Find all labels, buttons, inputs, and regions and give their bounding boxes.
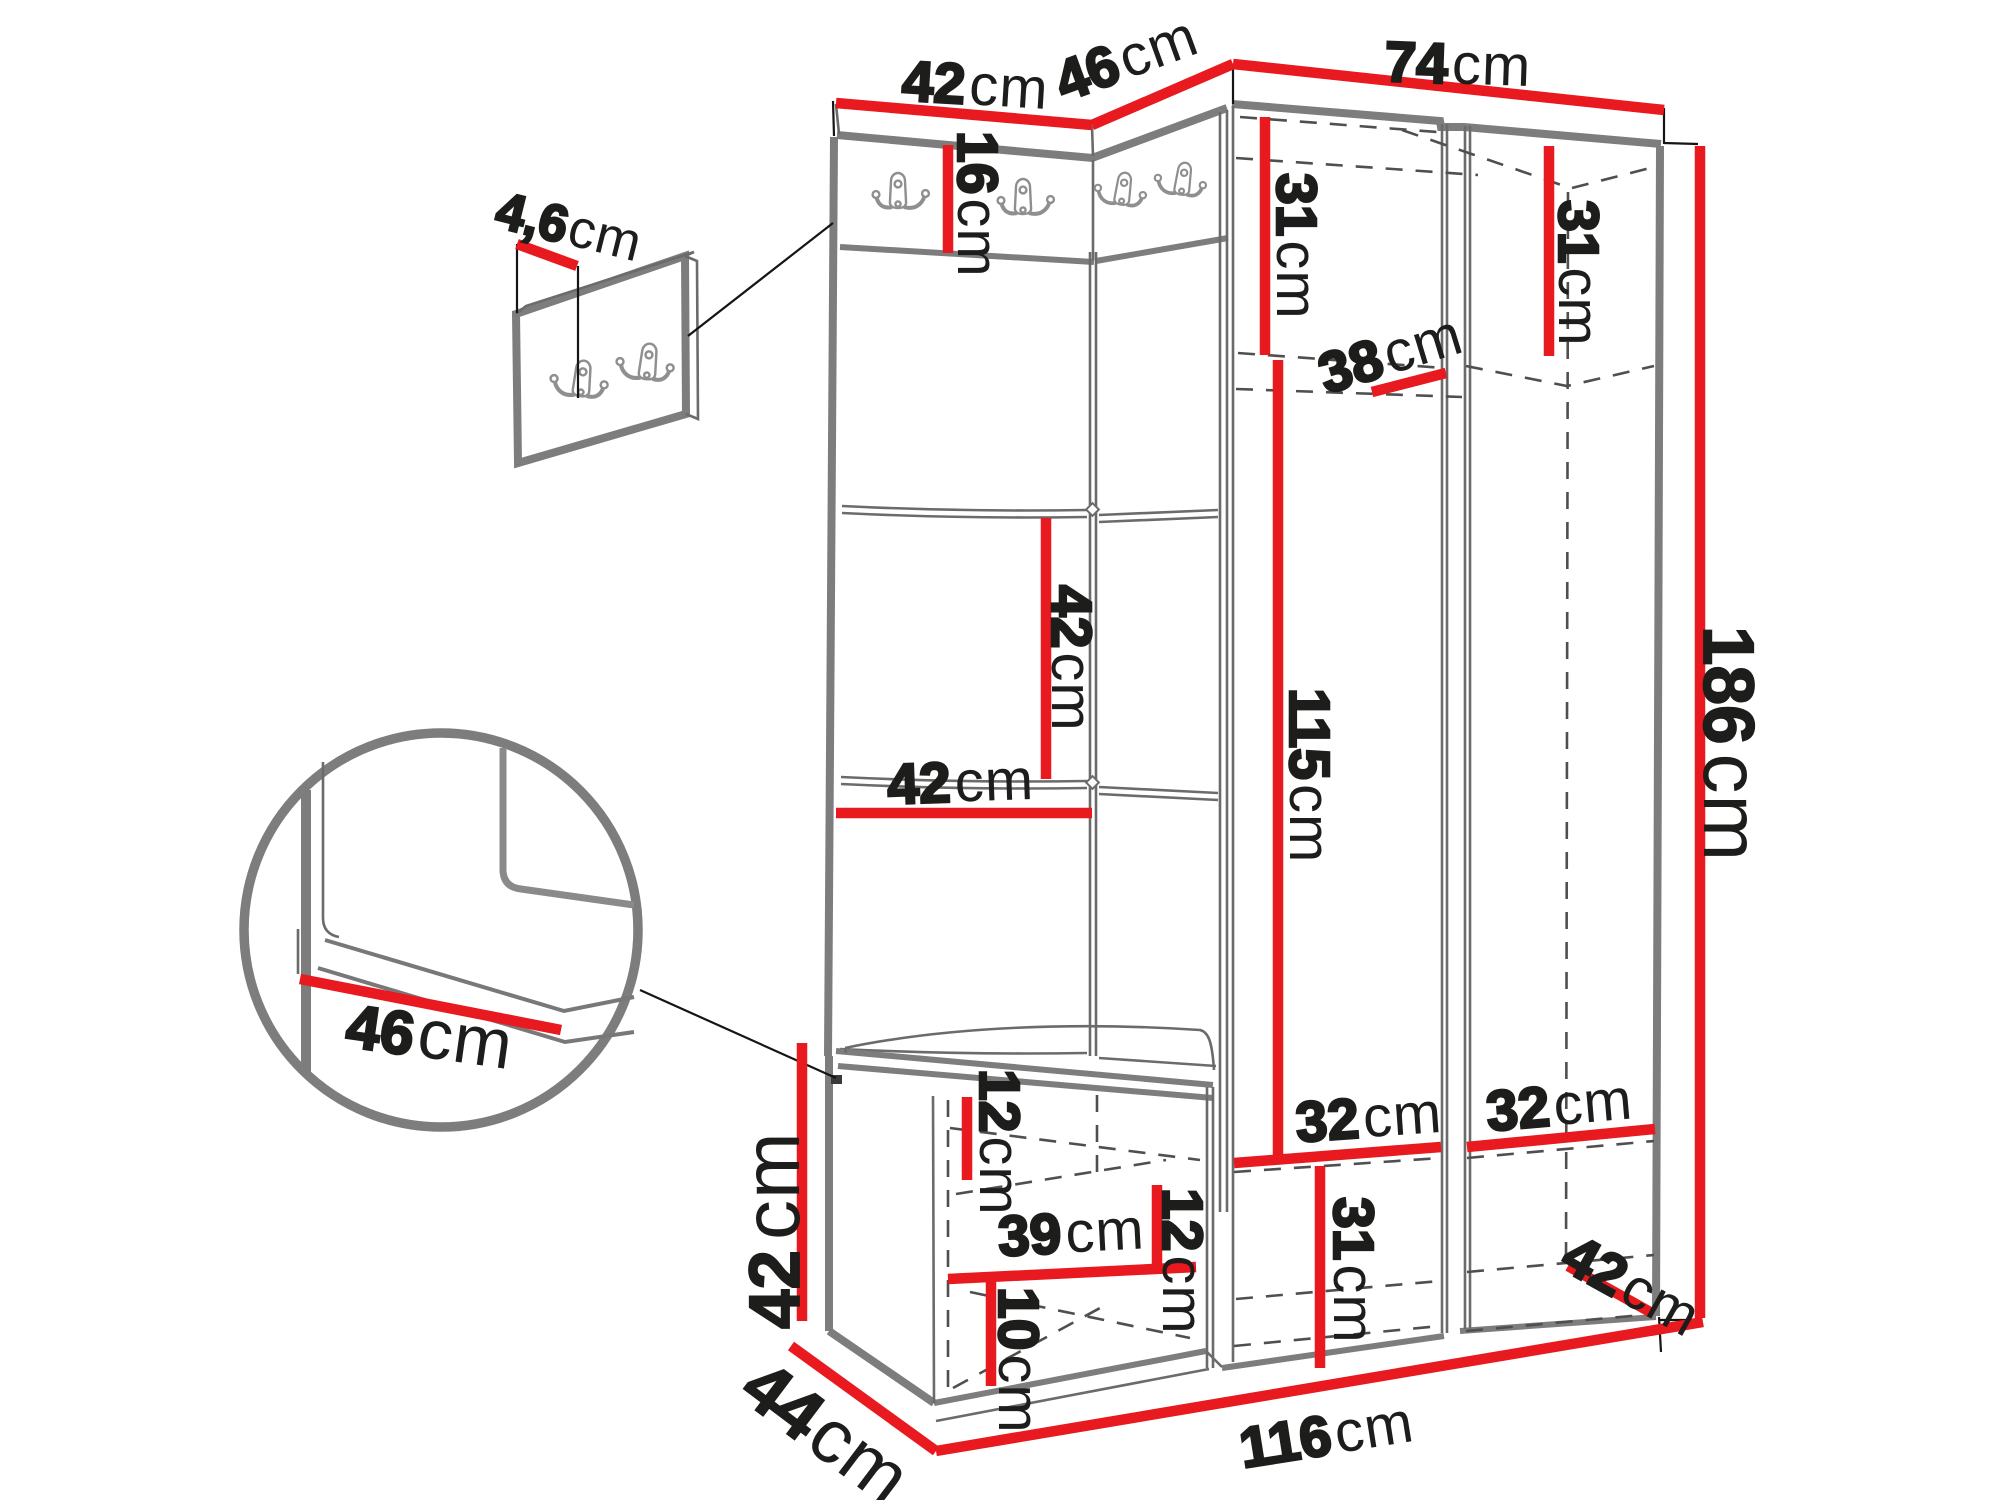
svg-text:42cm: 42cm <box>886 747 1035 817</box>
svg-text:10cm: 10cm <box>986 1287 1051 1434</box>
svg-text:74cm: 74cm <box>1384 29 1533 99</box>
svg-text:31cm: 31cm <box>1546 200 1611 347</box>
svg-text:39cm: 39cm <box>996 1196 1146 1269</box>
svg-text:32cm: 32cm <box>1483 1066 1635 1144</box>
svg-text:31cm: 31cm <box>1264 173 1329 320</box>
svg-text:32cm: 32cm <box>1293 1080 1444 1155</box>
svg-text:12cm: 12cm <box>967 1069 1032 1216</box>
svg-text:42cm: 42cm <box>727 1131 816 1329</box>
svg-text:12cm: 12cm <box>1150 1188 1215 1335</box>
svg-text:186cm: 186cm <box>1687 626 1776 862</box>
svg-text:115cm: 115cm <box>1277 688 1342 863</box>
svg-text:42cm: 42cm <box>900 48 1050 122</box>
svg-text:31cm: 31cm <box>1321 1197 1386 1344</box>
svg-text:42cm: 42cm <box>1039 585 1104 732</box>
svg-text:16cm: 16cm <box>945 131 1010 278</box>
